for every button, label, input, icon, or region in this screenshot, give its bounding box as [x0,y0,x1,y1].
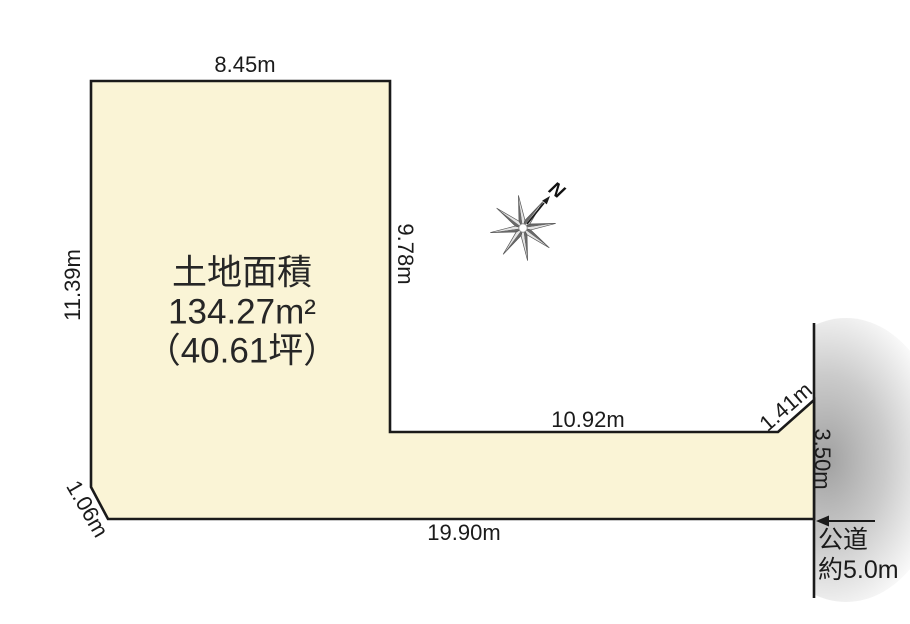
dim-top-edge: 8.45m [214,54,275,76]
road-width: 約5.0m [818,555,899,585]
land-area-square-meters: 134.27m² [146,293,339,332]
dim-inner-vertical-edge: 9.78m [394,223,416,284]
dim-bottom-edge: 19.90m [427,522,500,544]
dim-left-edge: 11.39m [62,249,84,321]
dim-right-edge: 3.50m [811,428,833,489]
public-road-label: 公道 約5.0m [818,525,899,585]
compass-rose-icon [486,191,561,266]
land-area-tsubo: （40.61坪） [146,332,339,371]
north-needle [527,203,544,224]
road-name: 公道 [818,525,899,555]
land-area-text: 土地面積 134.27m² （40.61坪） [146,254,339,371]
land-area-title: 土地面積 [146,254,339,293]
land-plot-diagram: 8.45m 11.39m 9.78m 10.92m 1.41m 3.50m 19… [0,0,910,624]
dim-inner-horizontal-edge: 10.92m [551,409,624,431]
